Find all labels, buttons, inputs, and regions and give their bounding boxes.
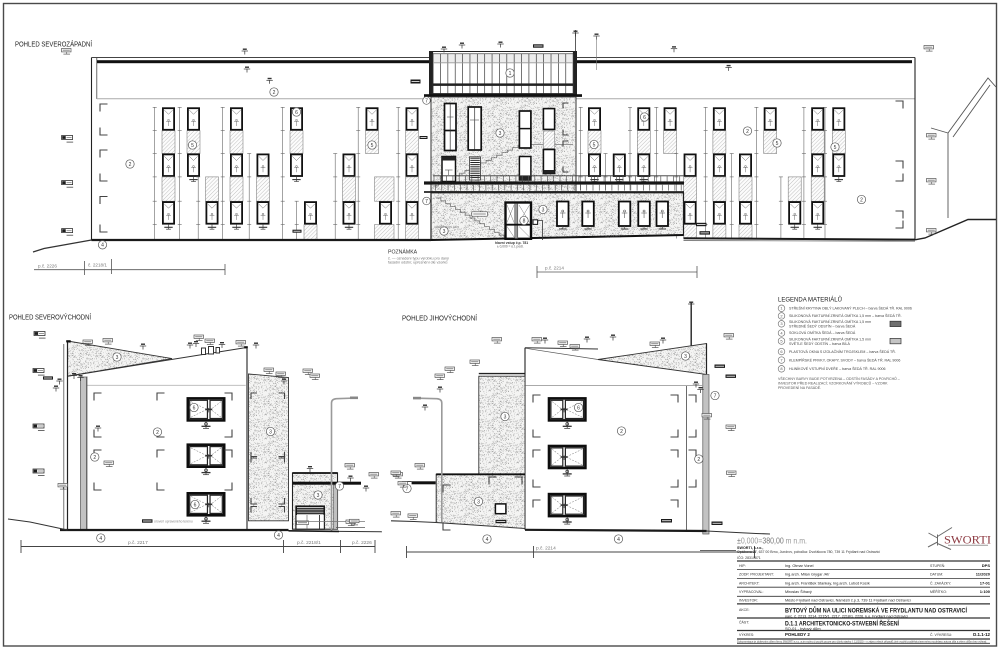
svg-text:POHLED SEVEROVÝCHODNÍ: POHLED SEVEROVÝCHODNÍ bbox=[9, 313, 91, 322]
svg-text:5: 5 bbox=[776, 141, 779, 147]
svg-text:2: 2 bbox=[93, 455, 96, 461]
svg-text:úroveň uliční čáry: úroveň uliční čáry bbox=[434, 225, 459, 229]
svg-text:17-01: 17-01 bbox=[980, 580, 991, 585]
svg-text:POZNÁMKA: POZNÁMKA bbox=[388, 249, 418, 256]
svg-text:STŘEDNĚ ŠEDÝ ODSTÍN – barva ŠE: STŘEDNĚ ŠEDÝ ODSTÍN – barva ŠEDÁ bbox=[789, 324, 856, 329]
svg-text:PLASTOVÁ OKNA S IZOLAČNÍM TROJ: PLASTOVÁ OKNA S IZOLAČNÍM TROJSKLEM – ba… bbox=[789, 349, 896, 354]
svg-text:8: 8 bbox=[523, 218, 526, 224]
svg-text:POHLED SEVEROZÁPADNÍ: POHLED SEVEROZÁPADNÍ bbox=[15, 40, 92, 49]
svg-text:2: 2 bbox=[697, 457, 700, 463]
svg-text:SWORTI: SWORTI bbox=[944, 533, 991, 547]
svg-text:SVĚTLE ŠEDÝ ODSTÍN – barva BÍL: SVĚTLE ŠEDÝ ODSTÍN – barva BÍLÁ bbox=[789, 341, 851, 346]
svg-text:ZODP. PROJEKTANT:: ZODP. PROJEKTANT: bbox=[739, 573, 774, 577]
svg-text:7: 7 bbox=[425, 199, 428, 205]
svg-text:LEGENDA MATERIÁLŮ: LEGENDA MATERIÁLŮ bbox=[778, 295, 842, 304]
svg-text:4: 4 bbox=[101, 243, 104, 249]
svg-text:3: 3 bbox=[504, 414, 507, 420]
svg-text:3: 3 bbox=[542, 207, 545, 213]
svg-text:Č. ZAKÁZKY:: Č. ZAKÁZKY: bbox=[930, 580, 951, 585]
svg-text:7: 7 bbox=[425, 98, 428, 104]
svg-text:D.1.1-12: D.1.1-12 bbox=[973, 632, 990, 637]
svg-text:4: 4 bbox=[277, 533, 280, 539]
svg-text:KLEMPÍŘSKÉ PRVKY, OKAPY, SVODY: KLEMPÍŘSKÉ PRVKY, OKAPY, SVODY – barva Š… bbox=[789, 357, 900, 362]
svg-text:Ing.arch. Milan Grygar /At/: Ing.arch. Milan Grygar /At/ bbox=[785, 573, 830, 577]
svg-text:parc. č. 2213, 2214, 2215/1, 2: parc. č. 2213, 2214, 2215/1, 2217, 2218/… bbox=[785, 613, 909, 618]
svg-text:p.č. 2214: p.č. 2214 bbox=[545, 266, 564, 271]
svg-text:DPS: DPS bbox=[982, 563, 991, 568]
svg-text:Č. VÝKRESU:: Č. VÝKRESU: bbox=[930, 632, 952, 637]
svg-text:5: 5 bbox=[593, 142, 596, 148]
svg-text:3: 3 bbox=[317, 493, 320, 499]
svg-text:+0,350 ú.t.: +0,350 ú.t. bbox=[605, 235, 621, 239]
svg-text:Dokumentace je duševním dílem: Dokumentace je duševním dílem firmy SWOR… bbox=[737, 640, 987, 644]
svg-text:6: 6 bbox=[643, 115, 646, 121]
svg-text:Miroslav Šíhavý: Miroslav Šíhavý bbox=[785, 589, 812, 594]
svg-text:STUPEŇ:: STUPEŇ: bbox=[930, 564, 945, 568]
svg-text:VÝKRES:: VÝKRES: bbox=[739, 633, 754, 637]
svg-text:4: 4 bbox=[486, 537, 489, 543]
svg-text:p.č. 2226: p.č. 2226 bbox=[38, 264, 57, 269]
svg-text:1: 1 bbox=[509, 71, 512, 77]
svg-text:INVESTOR:: INVESTOR: bbox=[739, 599, 758, 603]
svg-text:2: 2 bbox=[746, 129, 749, 135]
svg-text:5: 5 bbox=[191, 143, 194, 149]
svg-text:ARCHITEKT:: ARCHITEKT: bbox=[739, 581, 760, 585]
svg-text:INVESTOR PŘED REALIZACÍ; VZORK: INVESTOR PŘED REALIZACÍ; VZORKOVÁNÍ VÝRO… bbox=[778, 381, 888, 386]
svg-text:2: 2 bbox=[860, 197, 863, 203]
svg-text:2: 2 bbox=[156, 430, 159, 436]
svg-text:AKCE:: AKCE: bbox=[739, 608, 750, 612]
svg-text:IČO: 28310871: IČO: 28310871 bbox=[737, 555, 761, 560]
svg-text:± 0,000 = ú.t. podl.: ± 0,000 = ú.t. podl. bbox=[497, 245, 524, 249]
svg-text:3: 3 bbox=[443, 229, 446, 235]
svg-text:6: 6 bbox=[577, 405, 580, 411]
svg-text:úroveň upraveného terénu: úroveň upraveného terénu bbox=[154, 520, 193, 524]
svg-text:1:100: 1:100 bbox=[980, 589, 991, 594]
svg-text:±0,000=380,00 m n.m.: ±0,000=380,00 m n.m. bbox=[737, 537, 807, 546]
svg-text:VŠECHNY BARVY BUDE POTVRZENA –: VŠECHNY BARVY BUDE POTVRZENA – ODSTÍN FA… bbox=[778, 376, 900, 381]
svg-text:Opálkova 37, 637 00 Brno, Jund: Opálkova 37, 637 00 Brno, Jundrov, poboč… bbox=[737, 550, 880, 554]
svg-text:2: 2 bbox=[129, 162, 132, 168]
svg-text:6: 6 bbox=[194, 502, 197, 508]
svg-text:p.č. 2214: p.č. 2214 bbox=[536, 546, 556, 552]
svg-text:7: 7 bbox=[338, 484, 341, 490]
svg-text:Město Frýdlant nad Ostravicí,: Město Frýdlant nad Ostravicí, Náměstí č.… bbox=[785, 599, 912, 603]
svg-text:p.č. 2217: p.č. 2217 bbox=[128, 540, 148, 546]
svg-text:MĚŘÍTKO:: MĚŘÍTKO: bbox=[930, 589, 947, 594]
svg-text:SILIKONOVÁ FAKTURNÍ ZRNITÁ OMÍ: SILIKONOVÁ FAKTURNÍ ZRNITÁ OMÍTKA 1,5 mm… bbox=[789, 313, 902, 318]
svg-text:HIP:: HIP: bbox=[739, 564, 746, 568]
svg-text:PROVEDENÍ NA FASÁDĚ.: PROVEDENÍ NA FASÁDĚ. bbox=[778, 385, 821, 390]
svg-text:SILIKONOVÁ FAKTURNÍ ZRNITÁ OMÍ: SILIKONOVÁ FAKTURNÍ ZRNITÁ OMÍTKA 1,5 mm bbox=[789, 337, 871, 341]
svg-text:4: 4 bbox=[99, 536, 102, 542]
svg-text:3: 3 bbox=[477, 499, 480, 505]
svg-text:SILIKONOVÁ FAKTURNÍ ZRNITÁ OMÍ: SILIKONOVÁ FAKTURNÍ ZRNITÁ OMÍTKA 1,5 mm bbox=[789, 320, 871, 324]
svg-text:POHLED JIHOVÝCHODNÍ: POHLED JIHOVÝCHODNÍ bbox=[402, 314, 477, 323]
svg-text:2: 2 bbox=[273, 90, 276, 96]
svg-text:5: 5 bbox=[834, 145, 837, 151]
svg-text:6: 6 bbox=[295, 110, 298, 116]
svg-text:3: 3 bbox=[499, 131, 502, 137]
svg-text:č. 2218/1: č. 2218/1 bbox=[88, 263, 107, 268]
svg-text:HLINÍKOVÉ VSTUPNÍ DVEŘE – barv: HLINÍKOVÉ VSTUPNÍ DVEŘE – barva ŠEDÁ TŘ.… bbox=[789, 366, 885, 371]
svg-text:VYPRACOVAL:: VYPRACOVAL: bbox=[739, 590, 763, 594]
svg-text:ČÁST:: ČÁST: bbox=[739, 620, 749, 625]
svg-text:4: 4 bbox=[617, 537, 620, 543]
svg-text:p.č. 2226: p.č. 2226 bbox=[352, 540, 372, 546]
svg-text:6: 6 bbox=[193, 405, 196, 411]
svg-text:7: 7 bbox=[714, 393, 717, 399]
svg-text:Ing.arch. František Stankay, I: Ing.arch. František Stankay, Ing.arch. L… bbox=[785, 581, 870, 585]
svg-text:11/2020: 11/2020 bbox=[976, 572, 991, 577]
svg-text:fasádní odstín; upřesnění dle: fasádní odstín; upřesnění dle vzorků bbox=[388, 261, 447, 265]
svg-text:Ing. Otmar Vonel: Ing. Otmar Vonel bbox=[785, 564, 814, 568]
svg-text:3: 3 bbox=[116, 355, 119, 361]
svg-text:SO-01 - bytový dům: SO-01 - bytový dům bbox=[785, 626, 821, 631]
svg-text:5: 5 bbox=[371, 143, 374, 149]
svg-text:POHLEDY 2: POHLEDY 2 bbox=[785, 632, 810, 637]
svg-text:STŘEŠNÍ KRYTINA OBLÝ LAKOVANÝ: STŘEŠNÍ KRYTINA OBLÝ LAKOVANÝ PLECH – ba… bbox=[789, 306, 912, 311]
svg-text:2: 2 bbox=[620, 429, 623, 435]
svg-text:p.č. 2218/1: p.č. 2218/1 bbox=[297, 540, 321, 546]
svg-text:3: 3 bbox=[684, 354, 687, 360]
svg-text:DATUM:: DATUM: bbox=[930, 573, 943, 577]
svg-text:SOKLOVÁ OMÍTKA ŠEDÁ – barva ŠE: SOKLOVÁ OMÍTKA ŠEDÁ – barva ŠEDÁ bbox=[789, 330, 856, 335]
svg-text:3: 3 bbox=[269, 429, 272, 435]
